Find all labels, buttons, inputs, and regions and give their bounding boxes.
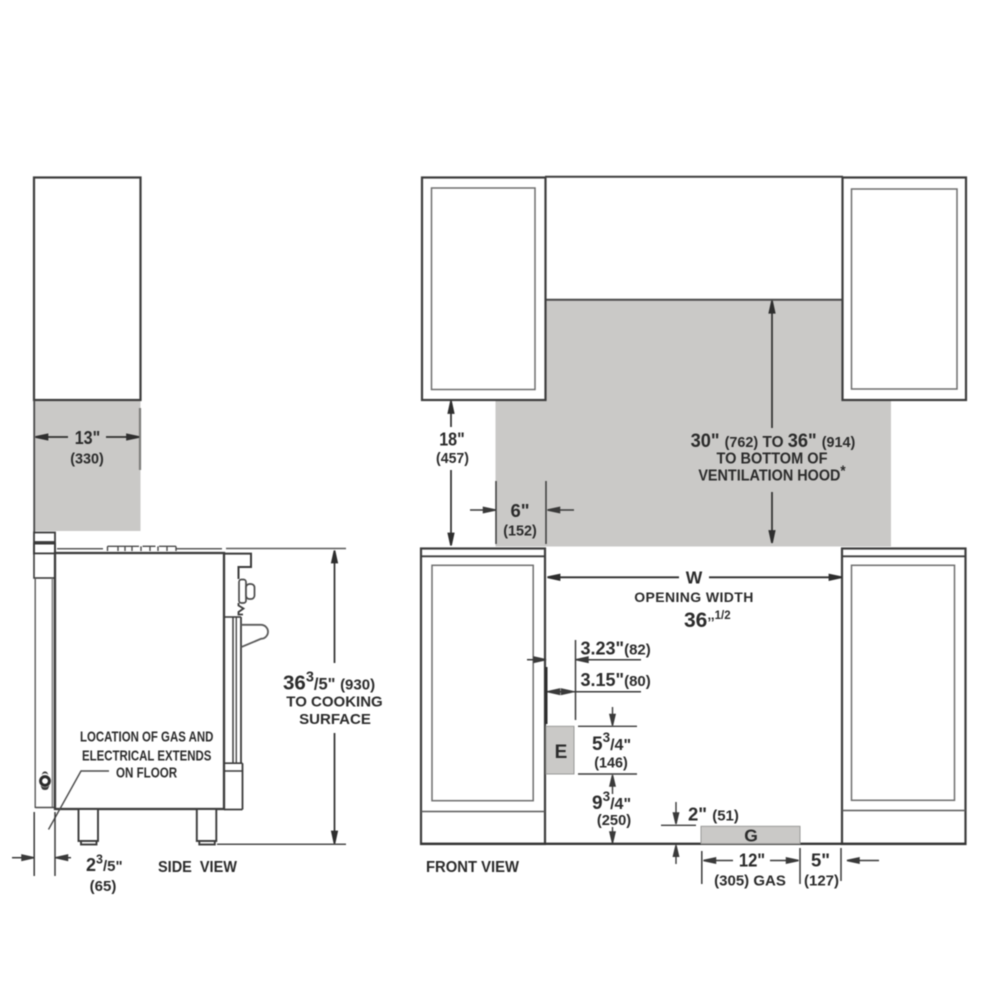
svg-text:G: G xyxy=(744,826,758,846)
svg-text:TO BOTTOM OF: TO BOTTOM OF xyxy=(717,450,828,468)
svg-text:E: E xyxy=(555,742,568,763)
svg-text:(330): (330) xyxy=(70,451,104,467)
svg-text:FRONT VIEW: FRONT VIEW xyxy=(426,859,520,876)
svg-text:(305) GAS: (305) GAS xyxy=(714,873,786,890)
svg-text:(127): (127) xyxy=(804,873,839,890)
svg-text:TO COOKING: TO COOKING xyxy=(286,694,382,711)
svg-text:VENTILATION HOOD*: VENTILATION HOOD* xyxy=(698,463,846,485)
svg-text:LOCATION OF GAS AND: LOCATION OF GAS AND xyxy=(80,728,213,745)
svg-text:18": 18" xyxy=(439,428,465,449)
svg-text:SIDE VIEW: SIDE VIEW xyxy=(158,859,238,877)
svg-text:ELECTRICAL EXTENDS: ELECTRICAL EXTENDS xyxy=(82,747,212,764)
svg-text:2" (51): 2" (51) xyxy=(688,804,739,825)
svg-text:(250): (250) xyxy=(597,813,631,829)
svg-text:OPENING WIDTH: OPENING WIDTH xyxy=(634,589,754,605)
svg-text:5": 5" xyxy=(811,850,830,871)
svg-text:12": 12" xyxy=(739,850,765,871)
svg-text:6": 6" xyxy=(510,500,529,521)
svg-text:(65): (65) xyxy=(90,878,117,895)
svg-text:(152): (152) xyxy=(503,523,537,539)
svg-text:(146): (146) xyxy=(594,755,628,771)
svg-text:SURFACE: SURFACE xyxy=(299,711,371,728)
svg-text:W: W xyxy=(686,568,703,588)
svg-text:3.15"(80): 3.15"(80) xyxy=(581,670,651,690)
svg-text:3.23"(82): 3.23"(82) xyxy=(581,639,651,659)
svg-text:ON FLOOR: ON FLOOR xyxy=(116,764,178,780)
svg-text:13": 13" xyxy=(75,427,101,448)
svg-text:(457): (457) xyxy=(436,451,469,467)
